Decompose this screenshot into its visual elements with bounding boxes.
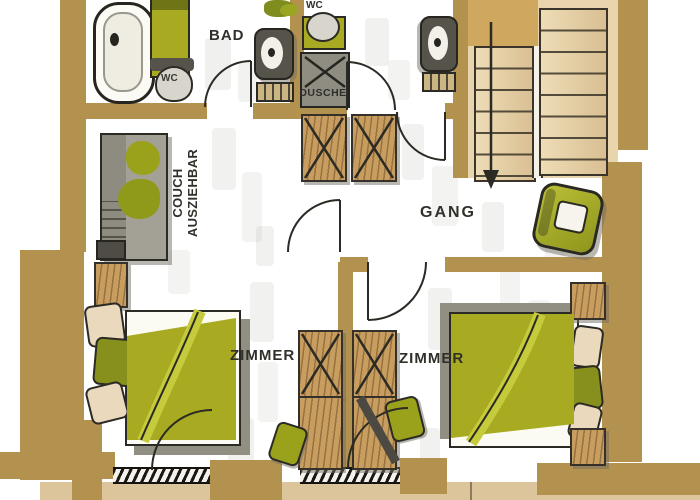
pillow	[569, 324, 605, 370]
wardrobe-x-icon	[354, 332, 395, 396]
marker-smudge	[212, 128, 236, 190]
double-bed-right	[449, 312, 579, 448]
washbasin-drain	[434, 38, 441, 47]
marker-smudge	[402, 124, 424, 180]
wardrobe-crossed	[298, 330, 343, 398]
fixture-label-wc: WC	[161, 73, 178, 84]
wall-right-top	[618, 0, 648, 150]
wall-bath-south-a	[60, 103, 207, 119]
room-label-gang: GANG	[420, 204, 476, 222]
shower	[300, 52, 350, 108]
wall-right-bottom	[602, 162, 642, 462]
armchair	[530, 180, 606, 258]
marker-smudge	[168, 250, 190, 294]
armchair-seat	[553, 200, 589, 235]
stair-landing	[468, 0, 538, 46]
toilet-bowl-small	[306, 12, 340, 42]
fixture-label-dusche: DUSCHE	[299, 87, 347, 99]
nightstand	[570, 428, 606, 466]
room-label-zimmer-right: ZIMMER	[399, 350, 464, 367]
couch-label: COUCH AUSZIEHBAR	[164, 144, 206, 242]
armchair-back	[537, 188, 557, 237]
wall-corridor-south-b	[445, 257, 605, 272]
floor-plan: BAD WC WC DUSCHE GANG ZIMMER ZIMMER COUC…	[0, 0, 700, 500]
toilet-bowl	[155, 66, 193, 102]
door-swing-living	[288, 200, 340, 252]
stair-flight-down	[474, 46, 536, 182]
couch-label-line2: AUSZIEHBAR	[185, 149, 200, 237]
wardrobe-x-icon	[300, 332, 341, 396]
wall-balcony-stub	[400, 458, 447, 494]
faucet-icon	[110, 33, 119, 46]
room-label-zimmer-left: ZIMMER	[230, 347, 295, 364]
pillow	[92, 336, 138, 387]
wardrobe-crossed	[301, 114, 347, 182]
room-label-bad: BAD	[209, 27, 245, 44]
couch-label-line1: COUCH	[170, 168, 185, 217]
towel-rail	[422, 72, 456, 92]
couch-plant-cushion	[126, 141, 160, 175]
nightstand-dark	[96, 240, 126, 260]
wall-balcony-cross-v	[72, 420, 102, 500]
marker-smudge	[365, 18, 389, 66]
bathtub-inner	[103, 12, 143, 92]
shower-x-icon	[302, 54, 348, 90]
wall-balcony-right	[537, 463, 700, 495]
balcony-post-line	[470, 482, 472, 500]
door-swing-bedroom-right	[368, 262, 426, 320]
wardrobe-x-icon	[353, 116, 395, 180]
stair-flight-up	[539, 8, 608, 176]
bathtub	[93, 2, 155, 104]
fixture-label-wc-small: WC	[306, 0, 323, 11]
marker-smudge	[388, 60, 410, 100]
nightstand	[94, 262, 128, 308]
towel-rail	[256, 82, 294, 102]
washbasin	[254, 28, 294, 80]
nightstand	[570, 282, 606, 320]
marker-smudge	[500, 268, 520, 314]
wardrobe-crossed	[352, 330, 397, 398]
marker-smudge	[258, 362, 278, 422]
wall-left-top	[60, 0, 86, 252]
washbasin	[420, 16, 458, 72]
balcony-threshold-left	[113, 467, 210, 484]
marker-smudge	[250, 282, 274, 342]
wardrobe-x-icon	[303, 116, 345, 180]
washbasin-drain	[268, 48, 275, 57]
wall-balcony-pier	[210, 460, 282, 500]
double-bed-left	[125, 310, 241, 446]
marker-smudge	[256, 226, 274, 266]
couch-plant-cushion	[118, 179, 160, 219]
wardrobe-crossed	[351, 114, 397, 182]
marker-smudge	[482, 202, 504, 252]
plant	[280, 4, 298, 16]
marker-smudge	[205, 38, 231, 90]
